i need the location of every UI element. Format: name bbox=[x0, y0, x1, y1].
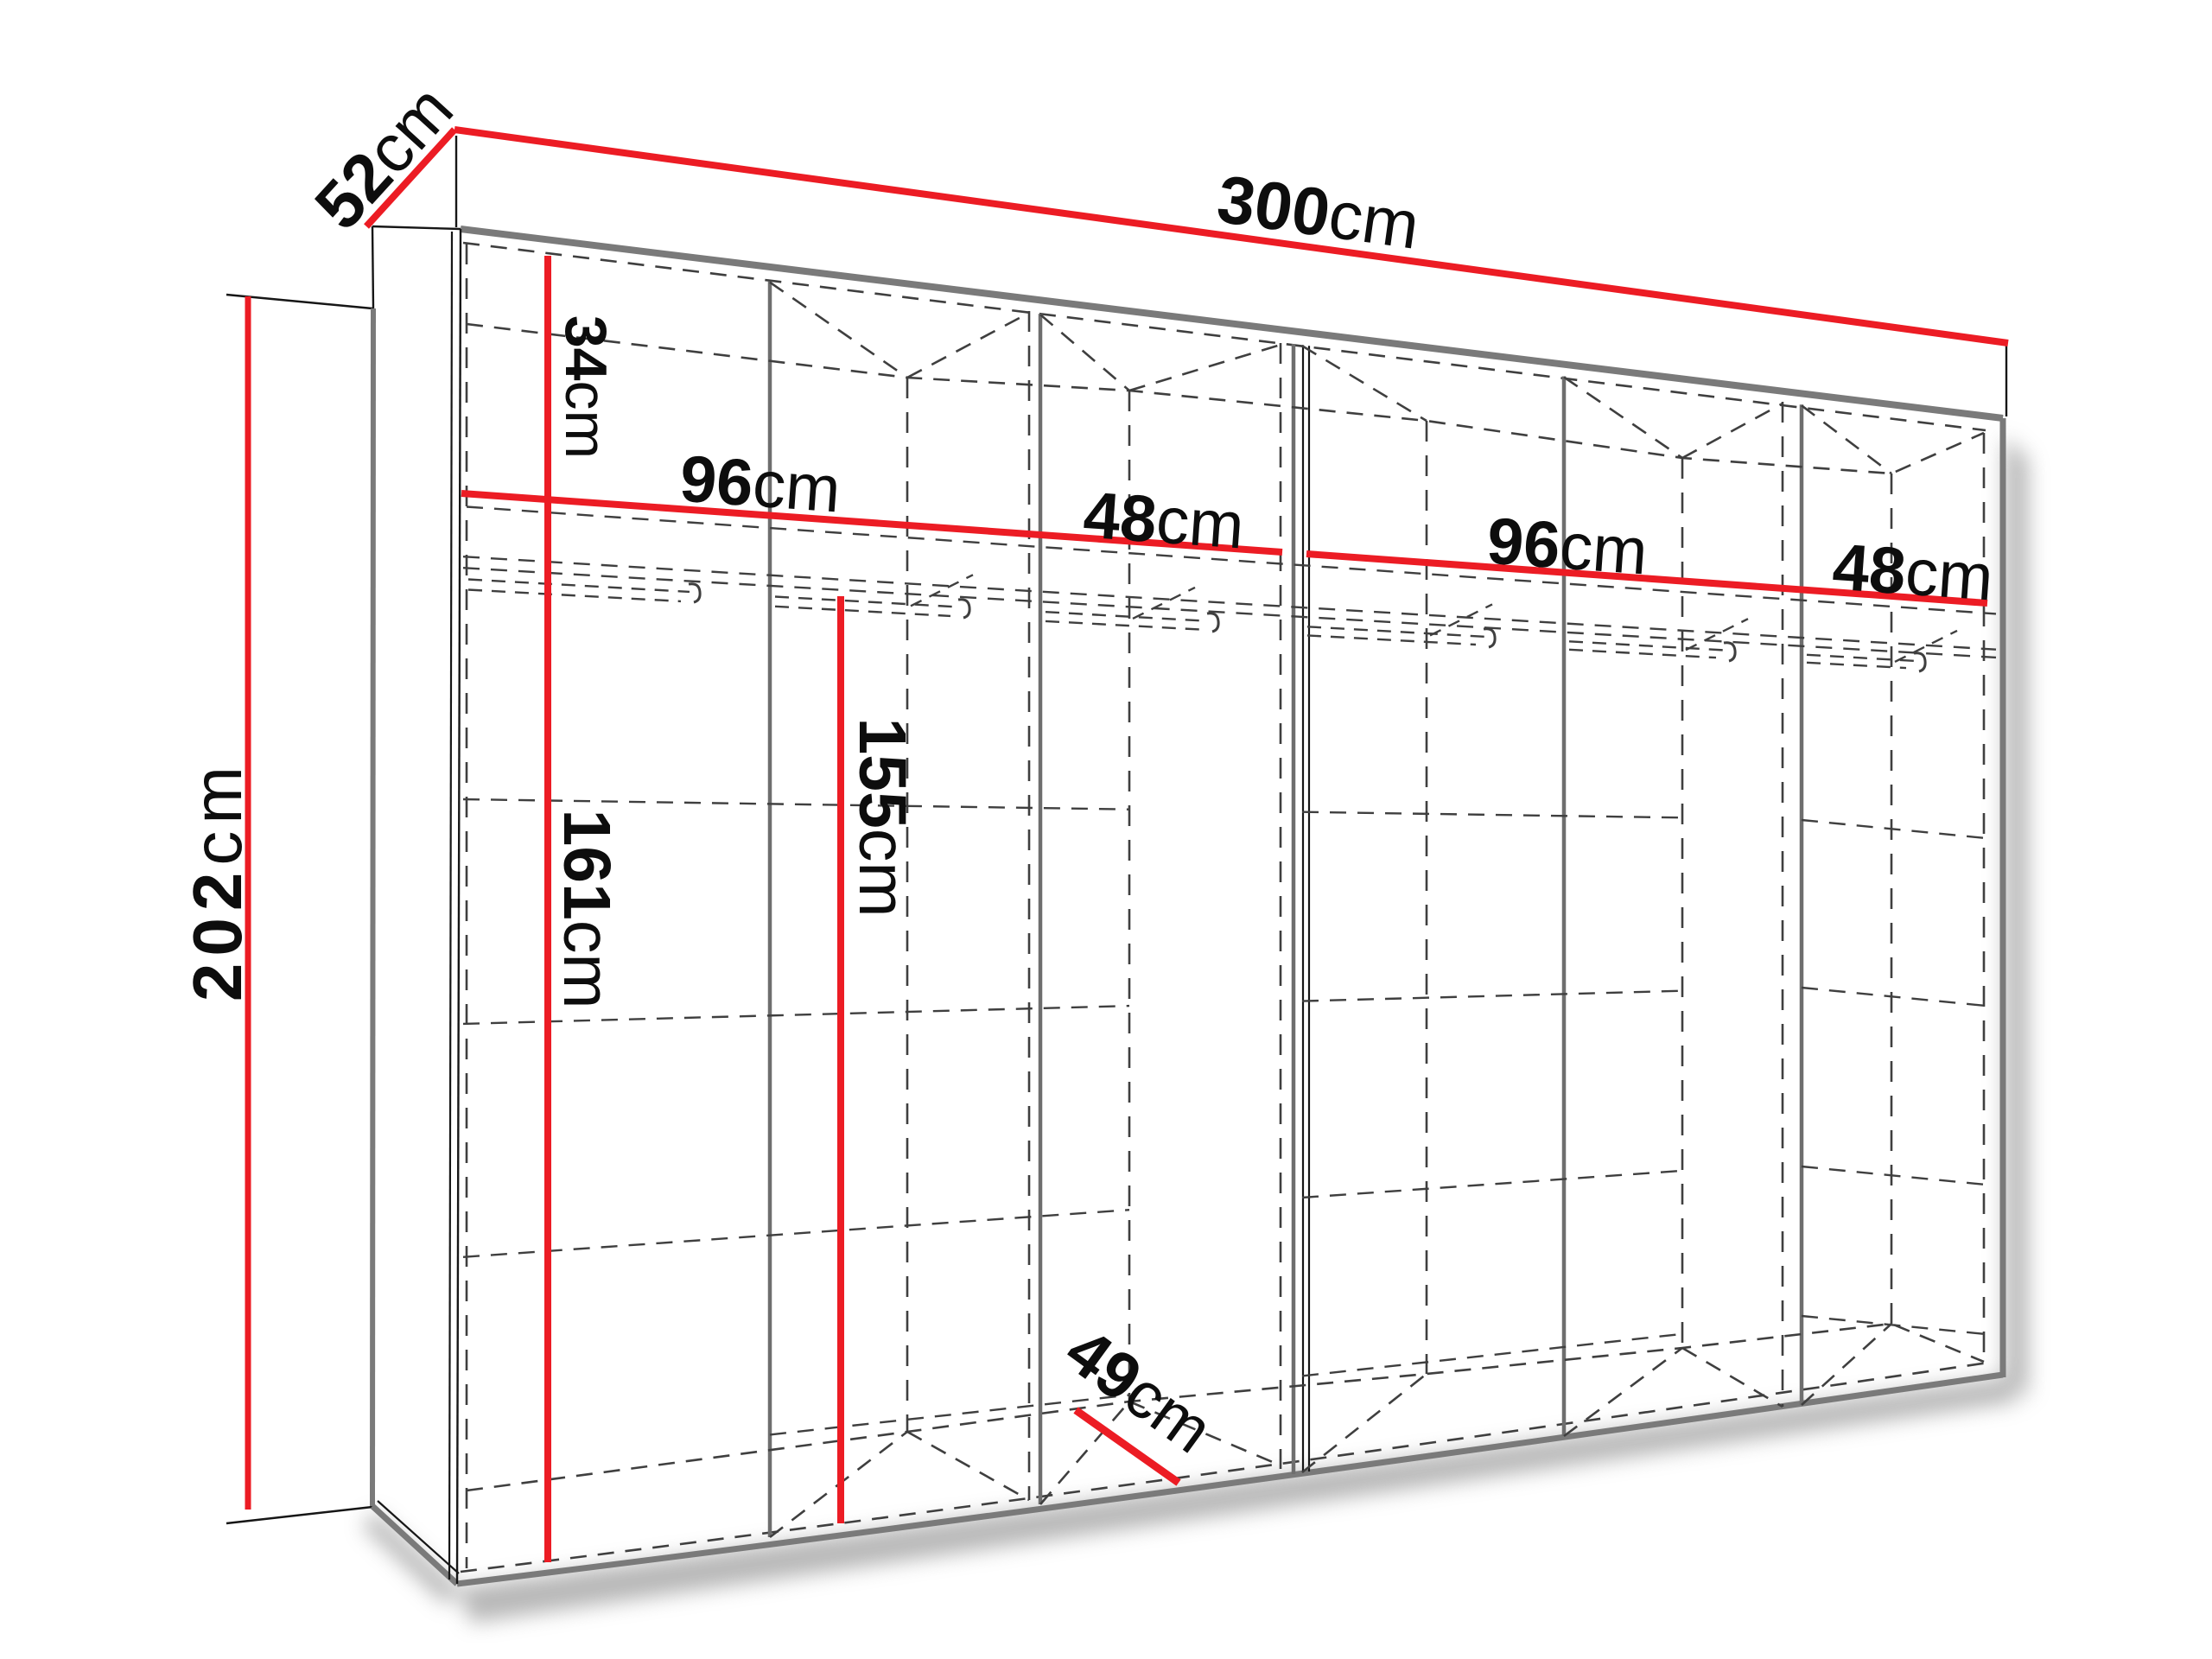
svg-text:48cm: 48cm bbox=[1081, 479, 1246, 563]
svg-text:96cm: 96cm bbox=[1484, 505, 1649, 589]
svg-text:161cm: 161cm bbox=[550, 809, 624, 1008]
svg-text:48cm: 48cm bbox=[1830, 531, 1995, 615]
svg-text:34cm: 34cm bbox=[553, 315, 619, 459]
svg-text:96cm: 96cm bbox=[677, 442, 842, 527]
svg-text:155cm: 155cm bbox=[845, 717, 919, 917]
svg-text:202cm: 202cm bbox=[179, 760, 256, 1001]
